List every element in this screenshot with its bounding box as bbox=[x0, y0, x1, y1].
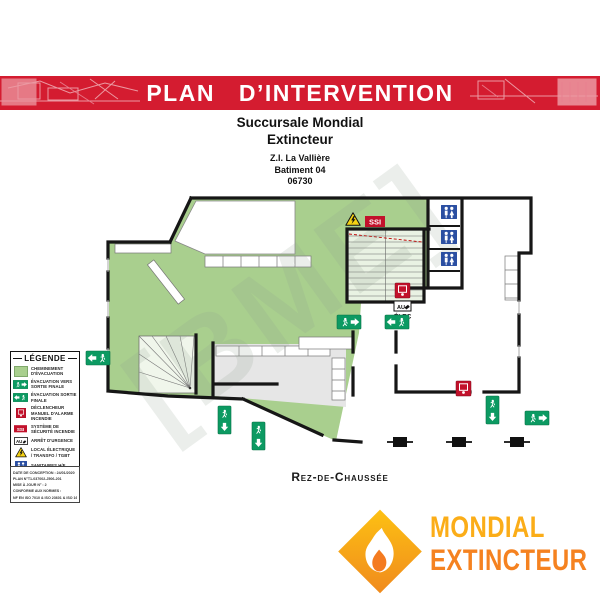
exit-sign-down bbox=[486, 396, 499, 424]
evacuation-path-swatch bbox=[14, 366, 28, 377]
door-symbol bbox=[446, 437, 472, 447]
exit-sign-left bbox=[385, 315, 409, 329]
intervention-plan-page: PLAN D’INTERVENTION Succursale Mondial E… bbox=[0, 0, 600, 600]
electrical-warning-icon bbox=[15, 447, 27, 458]
sanitary-icon bbox=[441, 252, 457, 266]
door-symbol bbox=[504, 437, 530, 447]
legend-item: ÉVACUATION SORTIE FINALE bbox=[13, 392, 77, 403]
legend-item: CHEMINEMENT D'ÉVACUATION bbox=[13, 366, 77, 377]
exit-sign-right bbox=[525, 411, 549, 425]
sanitary-icon bbox=[441, 205, 457, 219]
manual-alarm-icon bbox=[16, 408, 26, 418]
legend-item: ÉVACUATION VERS SORTIE FINALE bbox=[13, 379, 77, 390]
logo-text: MONDIAL EXTINCTEUR bbox=[430, 511, 587, 577]
legend-title: LÉGENDE bbox=[13, 354, 77, 363]
logo-line1: MONDIAL bbox=[430, 511, 587, 544]
svg-text:SSI: SSI bbox=[369, 218, 381, 227]
ssi-icon: SSI bbox=[14, 425, 27, 433]
sanitary-icons bbox=[441, 205, 457, 266]
exit-sign-down bbox=[218, 406, 231, 434]
svg-text:AU: AU bbox=[397, 305, 405, 311]
exit-sign-left bbox=[86, 351, 110, 365]
plan-info-notes: DATE DE CONCEPTION : 24/01/2020 PLAN N°T… bbox=[10, 466, 80, 503]
exit-sign-right bbox=[337, 315, 361, 329]
legend-item: LOCAL ÉLECTRIQUE / TRANSFO / TGBT bbox=[13, 447, 77, 458]
door-symbols bbox=[387, 437, 530, 447]
svg-text:SSI: SSI bbox=[17, 427, 24, 432]
svg-text:AU: AU bbox=[15, 439, 21, 444]
logo-line2: EXTINCTEUR bbox=[430, 544, 587, 577]
door-symbol bbox=[387, 437, 413, 447]
floor-label: Rez-de-Chaussée bbox=[90, 470, 590, 484]
manual-alarm-icon bbox=[395, 283, 410, 298]
flame-diamond-icon bbox=[330, 505, 430, 597]
company-logo: MONDIAL EXTINCTEUR bbox=[330, 505, 596, 597]
legend-item: AU ARRÊT D'URGENCE bbox=[13, 437, 77, 445]
ssi-badge: SSI bbox=[365, 216, 385, 227]
legend-item: SSI SYSTÈME DE SÉCURITÉ INCENDIE bbox=[13, 424, 77, 435]
emergency-stop-icon: AU bbox=[14, 437, 28, 445]
manual-alarm-icon bbox=[456, 381, 471, 396]
legend: LÉGENDE CHEMINEMENT D'ÉVACUATION ÉVACUAT… bbox=[10, 351, 80, 473]
exit-arrow-sign-icon bbox=[13, 380, 28, 389]
sanitary-icon bbox=[441, 230, 457, 244]
legend-item: DÉCLENCHEUR MANUEL D'ALARME INCENDIE bbox=[13, 405, 77, 421]
exit-man-sign-icon bbox=[13, 393, 28, 402]
exit-sign-down bbox=[252, 422, 265, 450]
